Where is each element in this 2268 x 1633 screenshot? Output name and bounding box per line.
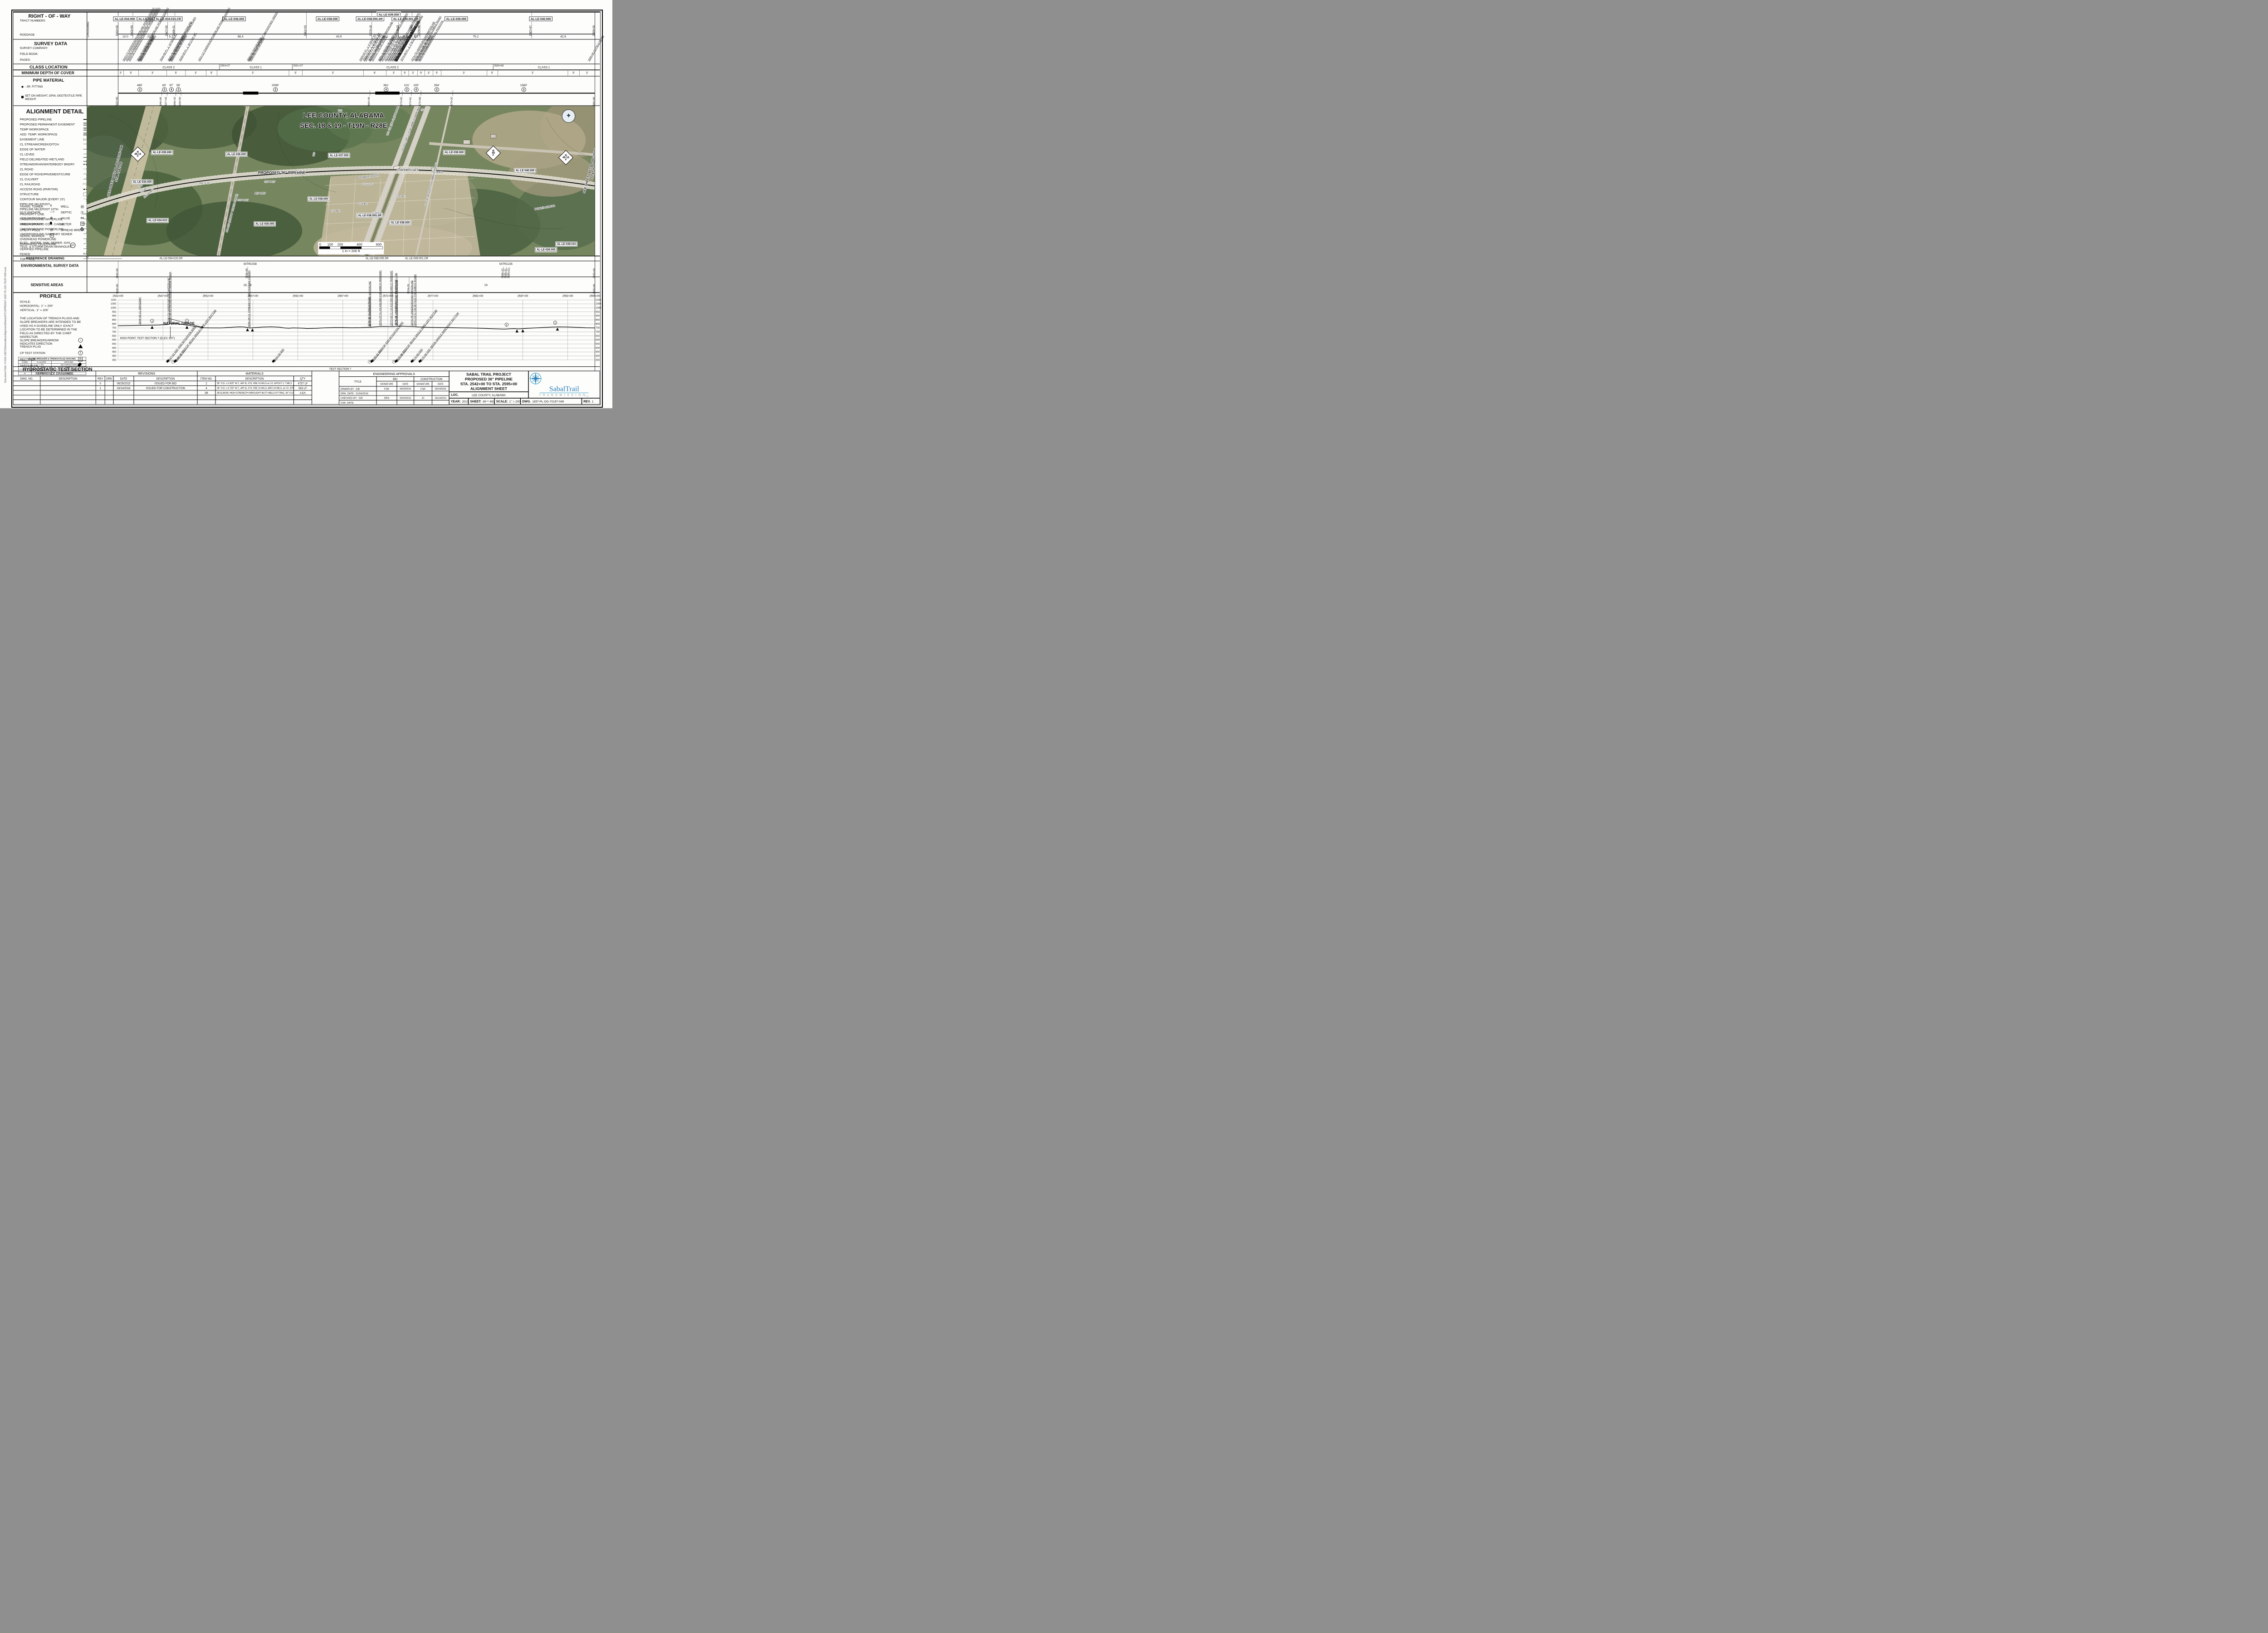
class-segment-label: CLASS 2 [118,66,220,69]
rev-cell [134,400,197,405]
approval-name: GIE [356,387,360,390]
pipe-seg-tick-end [595,90,595,96]
depth-value: 3' [139,71,166,74]
rev-cell [96,400,105,405]
compass-rose-icon [529,372,543,385]
class-boundary-tick [493,64,494,70]
north-compass-icon: ✦ [562,109,576,123]
approvals-bid-sig-val: DRS [376,395,397,400]
env-tag: 54TRC235 [497,263,515,266]
roddage-value: 42.6 [532,35,595,39]
profile-y-tick-left: 750 [107,327,116,330]
ref-row-desc [40,395,96,400]
symbol-label-well: WELL [61,205,69,208]
spacing-table-header: SLOPE BREAKER & TRENCH PLUG SPACING [18,357,86,361]
ref-row-dwgno [13,395,40,400]
logo-name2: Trail [565,385,579,393]
meta-year: YEAR: 2017 [449,398,469,405]
rev-cell: ISSUED FOR CONSTRUCTION [134,385,197,390]
legend-label: STREAM/DRAIN/WATERBODY BNDRY [20,162,83,166]
profile-x-tick: 2552+00 [200,294,216,297]
title-block-line4: ALIGNMENT SHEET [450,386,528,391]
tract-numbers-label: TRACT NUMBERS [20,19,45,22]
logo-name1: Sabal [549,385,566,393]
legend-label: CL LEVEE [20,152,83,156]
profile-callout: 2571+27 CL US-431/280-COLUMBUS PARKWAY [379,270,382,326]
mat-desc: 36" O.D. x 0.750" W.T., API 5L X70, FBE … [215,385,294,390]
rev-cell [96,395,105,400]
profile-y-tick-left: 800 [107,322,116,326]
legend-label: ACCESS ROAD (PAR/TAR) [20,187,83,191]
approval-label: CHECKED BY: [341,397,357,400]
map-tract-box: AL-LE-029.005 [536,248,557,252]
rev-cell [113,400,134,405]
reference-drawing-value: AL-LE-038.005.SR [363,257,391,260]
meter-icon: M [81,222,85,226]
depth-value: 3' [217,71,289,74]
milepost-p: P [137,155,138,158]
legend-label: CL STREAM/CREEK/DITCH [20,142,83,146]
rev-col-head: DRN [105,376,113,381]
class-boundary-tick [220,64,220,70]
map-tract-box: AL-LE-039.010 [556,242,577,246]
profile-scale-label: SCALE: [20,300,31,303]
survey-title: SURVEY DATA [34,41,67,46]
depth-value: 3' [425,71,433,74]
profile-x-tick: 2542+00 [110,294,126,297]
env-tag: 54TRC038 [241,263,259,266]
symbol-label-aerial: AERIAL MARKER [20,234,45,238]
guy-icon: —< [50,210,54,214]
sabal-trail-logo: SabalTrail T R A N S M I S S I O NSM [528,371,600,399]
legend-label: OVERHEAD POWERLINE [20,237,83,241]
depth-value: 5' [401,71,409,74]
legend-row: PROPOSED PERMANENT EASEMENT [20,122,85,127]
profile-note: THE LOCATION OF TRENCH PLUGS AND SLOPE B… [20,317,84,339]
env-tick [509,267,510,277]
approvals-header: ENGINEERING APPROVALS [339,371,450,377]
ref-desc-head: DESCRIPTION [40,376,96,381]
profile-y-tick-right: 350 [596,358,600,361]
sensitive-title: SENSITIVE AREAS [31,283,64,287]
legend-label: PROPOSED PERMANENT EASEMENT [20,122,83,126]
pipe-seg-tick [411,90,412,96]
profile-x-tick: 2562+00 [290,294,306,297]
symbol-label-meter: METER [61,222,72,226]
profile-y-tick-left: 550 [107,342,116,346]
pipe-item-circle: 2 [435,88,439,92]
profile-x-tick: 2567+00 [335,294,351,297]
profile-x-tick: 2582+00 [470,294,486,297]
rev-col-head: DATE [113,376,134,381]
depth-value: 3' [118,71,123,74]
approvals-con-sig-val [414,400,432,405]
gap-cell [312,371,339,405]
approvals-con-date-val: 03/14/2016 [432,395,450,400]
profile-y-tick-right: 900 [596,314,600,317]
revisions-header: REVISIONS [96,371,197,376]
rev-cell [105,390,113,395]
meta-scale-value: 1" = 200' [508,400,521,403]
approvals-con-sig-val [414,391,432,395]
band-divider [13,277,600,277]
depth-value: 5' [433,71,441,74]
profile-y-tick-right: 950 [596,310,600,313]
class-location-title: CLASS LOCATION [29,65,68,70]
rev-cell [113,395,134,400]
profile-scale-v: VERTICAL: 1" = 200' [20,308,49,312]
high-point-label: HIGH POINT, TEST SECTION 7 (ELEV. 807') [120,336,175,340]
depth-value: 5' [487,71,498,74]
reference-drawing-value: AL-LE-039.001.CR [403,257,430,260]
pipe-line [118,93,595,94]
sens-station: 2542+00 [116,284,119,294]
logo-sub: T R A N S M I S S I O NSM [529,393,600,397]
approvals-bid-date-val: 06/29/2015 [397,395,414,400]
survey-field-label: FIELD BOOK: [20,52,39,56]
meta-sheet-num: 49 [482,400,486,404]
legend-label: EDGE OF WATER [20,147,83,151]
map-tract-box: AL-LE-035.000 [152,151,172,155]
logo-sm: SM [586,395,589,397]
class-boundary-station: 2561+37 [293,64,303,68]
rev-cell [134,395,197,400]
ref-row-dwgno [13,381,40,385]
meta-year-label: YEAR: [451,400,461,403]
depth-value: 5' [123,71,139,74]
class-segment-label: CLASS 1 [220,66,293,69]
depth-value: 5' [289,71,303,74]
profile-x-tick: 2595+00 [587,294,603,297]
legend-row: STREAM/DRAIN/WATERBODY BNDRY [20,162,85,167]
approvals-con-date-val [432,391,450,395]
profile-y-tick-right: 550 [596,342,600,346]
rev-cell: 03/14/2016 [113,385,134,390]
ref-row-dwgno [13,390,40,395]
sens-station: 2595+00 [592,284,596,294]
valve-icon: ⋈ [81,216,84,220]
env-edge-station: 2595+00 [592,268,596,278]
profile-scale-h: HORIZONTAL: 1" = 200' [20,304,53,308]
environmental-title: ENVIRONMENTAL SURVEY DATA [21,263,78,268]
profile-y-tick-left: 500 [107,346,116,350]
pipe-seg-tick [167,90,167,96]
milepost-text: M49P [492,150,495,156]
approval-label: DRAWN BY: [341,387,355,390]
map-label: 200' X 25' [264,180,275,184]
map-label: 200' X 50' [238,199,249,202]
approval-label: CHK. DATE: [341,401,354,404]
tract-number-box: AL-LE-039.000 [445,17,468,21]
legend-label: EASEMENT LINE [20,137,83,141]
approvals-con-sig-val: JC [414,395,432,400]
title-block-line2: PROPOSED 36" PIPELINE [450,377,528,382]
loc-row: LOC.LEE COUNTY, ALABAMA [449,392,528,398]
crossing-label: CROSSING [86,22,90,38]
pipe-seg-tick [118,90,118,96]
septic-icon: Ⓢ [81,210,84,215]
tract-number-box: AL-LE-036.005 [222,17,245,21]
profile-y-tick-right: 400 [596,354,600,357]
pipe-length: 58' [171,83,185,87]
hydro-value: TEST SECTION 7 [323,367,357,370]
profile-callout: 2575+13 CL CR-39 (OLD COLUMBUS ROAD) [414,274,417,326]
mat-desc [215,400,294,405]
class-boundary-tick [292,64,293,70]
profile-y-tick-right: 600 [596,338,600,341]
band-divider [13,39,600,39]
map-label: 3.05 AC. [396,195,406,198]
sensitive-value: 16 [477,283,495,287]
map-tract-box: AL-LE-038.000 [308,197,329,201]
meta-sheet-of: OF [486,400,489,402]
pipe-seg-tick [181,90,181,96]
weight-square-icon [21,96,24,98]
pole-icon: ⊙ [50,228,53,232]
mat-col-head: QTY [294,376,312,381]
mat-desc: 3R ELBOW, HIGH STRENGTH WROUGHT BUTT-WEL… [215,390,294,395]
approvals-bid-group: BID [376,377,414,381]
pipe-length: 1580' [517,83,531,87]
legend-label: STRUCTURE [20,192,83,196]
legend-label: FENCE [20,252,83,256]
band-divider [13,70,600,71]
map-label: UTILITY TRAILER [396,169,419,172]
pipe-item-circle: 2 [273,88,278,92]
legend-row: PROPOSED PIPELINE [20,117,85,122]
map-tract-box: AL-LE-039.005 [390,221,411,225]
profile-x-tick: 2587+00 [515,294,531,297]
depth-value: 6' [363,71,386,74]
depth-value: 3' [186,71,206,74]
meta-rev-value: 1 [591,400,593,403]
pipe-legend-fitting: - 3R, FITTING [25,85,43,88]
approvals-bid-sig-val [376,400,397,405]
depth-value: 5' [568,71,580,74]
profile-y-tick-right: 1050 [596,302,601,306]
profile-y-tick-left: 1000 [107,306,116,309]
mat-item [197,400,215,405]
depth-value: 3' [409,71,418,74]
tract-number-box: AL-LE-039.000 [377,12,400,17]
mat-item: 4 [197,385,215,390]
map-area: LEE COUNTY, ALABAMASEC. 18 & 19 - T19N -… [87,106,595,256]
map-tract-box: AL-LE-040.000 [514,169,535,173]
natural-grade-label: NATURAL GRADE [163,322,195,326]
profile-y-tick-right: 650 [596,334,600,337]
reference-drawing-title: REFERENCE DRAWING [26,257,65,261]
pipe-seg-tick [421,90,421,96]
depth-value: 3' [498,71,568,74]
map-tract-box: AL-LE-036.000 [226,152,247,156]
mat-item: 3R [197,390,215,395]
map-tract-box: AL-LE-037.000 [328,153,349,157]
mat-qty: 4737 LF [294,381,312,385]
ref-row-desc [40,385,96,390]
legend-row: ACCESS ROAD (PAR/TAR)PAR/TAR-ST-CO-000 [20,187,85,192]
symbol-label-tower: TRANS. TOWER [20,205,44,208]
legend-row: CONTOUR MAJOR (EVERY 10')600 [20,197,85,202]
manhole-icon: MH [70,243,76,248]
legend-row: CL CULVERT [20,177,85,182]
profile-y-tick-left: 1050 [107,302,116,306]
rev-cell: ISSUED FOR BID [134,381,197,385]
profile-y-tick-left: 600 [107,338,116,341]
depth-value: 3' [386,71,401,74]
pipe-length: 2099' [269,83,282,87]
profile-y-tick-left: 450 [107,351,116,354]
rev-cell [105,385,113,390]
pipe-item-circle: 2 [162,88,166,92]
document-path: Document Path: H:\GIS-1657\Deliverables\… [4,267,7,383]
roddage-value: 75.2 [420,35,532,39]
legend-row: EASEMENT LINE [20,137,85,142]
approval-label: DRN. DATE: [341,392,355,395]
pipe-title: PIPE MATERIAL [33,78,64,83]
map-scalebar: 0100 200400 600 1 in = 200 ft [318,242,384,254]
manholes-label: ELEC., WATER, SAN. SEWER, GAS TELE. & ST… [20,241,77,249]
mat-qty: 4 EA [294,390,312,395]
ref-row-dwgno [13,400,40,405]
legend-label: PROPOSED PIPELINE [20,117,83,121]
milepost-text: M49.15P [562,154,569,161]
map-tract-box: AL-LE-034.010 [147,219,168,223]
profile-marker-icon-cptest: T [78,351,83,356]
depth-value: 3' [580,71,595,74]
legend-label: CL RAILROAD [20,182,83,186]
pipe-item-circle: 2 [405,88,409,92]
profile-y-tick-left: 1100 [107,298,116,302]
profile-callout: 2556+69 CL STREAM (UT WACOOCHEE CREEK) [248,270,251,327]
spread-icon [81,228,84,231]
scalebar-ticks: 0100 200400 600 [319,243,383,247]
profile-y-tick-left: 950 [107,310,116,313]
pipe-length: 354' [430,83,444,87]
approvals-con-sig: SIGNATURE [414,381,432,387]
depth-value: 5' [206,71,217,74]
meta-dwg: DWG. 1657-PL-DG-70197-049 [521,398,582,405]
legend-label: FIELD DELINEATED WETLAND [20,157,83,161]
meta-scale-label: SCALE: [496,400,508,403]
pipe-item-circle: 4 [384,88,388,92]
pipe-weight-bar [243,92,259,95]
pipe-seg-tick [370,90,370,96]
rev-cell [105,395,113,400]
meta-sheet-label: SHEET: [470,400,481,403]
profile-callout: 2572+50 CL US-431/280-COLUMBUS PARKWAY [390,270,393,326]
legend-label: CL ROAD [20,167,83,171]
legend-panel: PROPOSED PIPELINEPROPOSED PERMANENT EASE… [20,117,85,262]
depth-title: MINIMUM DEPTH OF COVER [22,71,74,75]
map-label: 0.23 AC. [358,202,368,205]
map-tract-box: AL-LE-038.005.SR [357,214,382,218]
legend-row: CL LEVEE [20,152,85,157]
profile-title: PROFILE [40,293,62,299]
title-block: SABAL TRAIL PROJECTPROPOSED 36" PIPELINE… [449,371,528,392]
mat-qty [294,400,312,405]
tract-number-box: AL-LE-040.000 [529,17,552,21]
profile-y-tick-right: 1000 [596,306,601,309]
legend-label: CL CULVERT [20,177,83,181]
mat-col-head: DESCRIPTION [215,376,294,381]
depth-value: 3' [441,71,487,74]
profile-y-tick-left: 900 [107,314,116,317]
materials-header: MATERIALS [197,371,312,376]
pipe-seg-tick [161,90,162,96]
meta-rev: REV. 1 [582,398,600,405]
profile-y-tick-left: 400 [107,354,116,357]
row-title: RIGHT - OF - WAY [29,14,71,19]
tower-icon: Ŧ [50,204,52,208]
profile-y-tick-left: 350 [107,358,116,361]
rev-cell: 06/29/2015 [113,381,134,385]
map-label: 750 [421,108,425,112]
profile-y-tick-right: 500 [596,346,600,350]
profile-callout: 2573+06 UNDERGROUND WATERLINE [395,280,398,325]
ref-drawings-header: REFERENCE DRAWINGS [13,371,96,376]
mat-item [197,395,215,400]
survey-field-label: SURVEY COMPANY: [20,46,48,50]
band-divider [13,292,600,293]
meta-scale: SCALE: 1" = 200' [494,398,521,405]
rev-cell: 1 [96,385,105,390]
mat-qty [294,395,312,400]
profile-marker-label: SLOPE BREAKERS/ARROW INDICATES DIRECTION [20,338,73,345]
ref-row-dwgno [13,385,40,390]
pipe-length: 485' [133,83,147,87]
pipe-item-circle: 4 [414,88,418,92]
pipe-legend-weight: SET ON WEIGHT, GPW, GEOTEXTILE PIPE WEIG… [25,94,84,101]
legend-row: FIELD DELINEATED WETLAND⑃⑃⑃⑃ [20,157,85,162]
profile-marker-icon-breaker: ↓ [78,338,83,343]
rev-col-head: REV [96,376,105,381]
band-divider [13,76,600,77]
legend-label: TEMP WORKSPACE [20,127,83,131]
aerial-icon: ✕ [50,234,54,238]
rev-cell [96,390,105,395]
ref-row-desc [40,381,96,385]
depth-value: 3' [303,71,364,74]
depth-value: 5' [418,71,425,74]
legend-row: EDGE OF WATER [20,147,85,152]
meta-sheet: SHEET: 49 OF 492 [469,398,495,405]
legend-row: STRUCTURE [20,192,85,197]
milepost-text: M48.14P [134,151,141,157]
legend-row: CL ROAD [20,167,85,172]
approvals-row-title: CHK. DATE: [339,400,377,405]
symbol-label-valve: VALVE [61,216,70,220]
title-block-line3: STA. 2542+00 TO STA. 2595+00 [450,381,528,386]
rev-cell [134,390,197,395]
approval-name: GIE [359,397,363,400]
profile-x-tick: 2592+00 [560,294,576,297]
profile-y-tick-right: 800 [596,322,600,326]
profile-callout: 2570+11 UNDERGROUND WATERLINE [368,281,371,327]
mat-desc: 36" O.D. x 0.625" W.T., API 5L X70, FBE … [215,381,294,385]
symbol-label-pole: UTILITY POLE [20,228,40,232]
roddage-value: 10.0 [118,35,133,39]
mat-col-head: ITEM NO. [197,376,215,381]
approval-name: 01/04/2016 [356,392,368,395]
profile-marker-label: TRENCH PLUG [20,345,73,348]
rev-cell [105,400,113,405]
symbol-label-hdd: HDD ENTRY/EXIT [20,216,45,220]
class-boundary-station: 2583+68 [494,64,504,68]
map-county-sec: SEC. 18 & 19 - T19N - R28E [300,122,387,129]
map-label: 200' X 25' [199,182,210,185]
map-tract-box: AL-LE-034.000 [132,180,153,184]
title-block-line1: SABAL TRAIL PROJECT [450,372,528,377]
